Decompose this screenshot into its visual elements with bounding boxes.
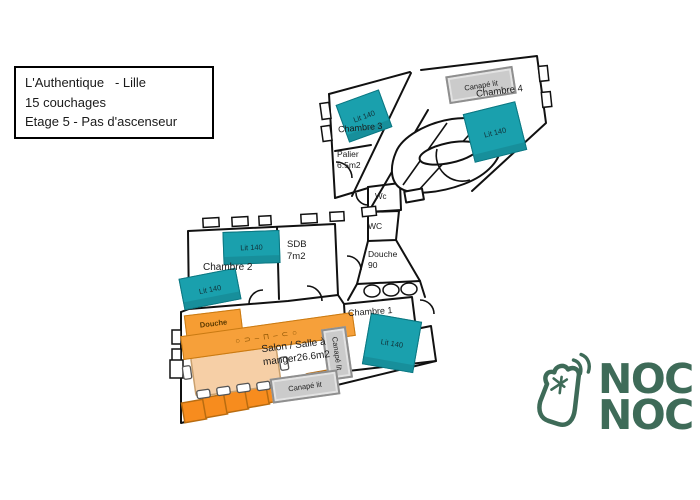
bed-label: Lit 140 [198, 282, 222, 295]
listing-info-box: L'Authentique - Lille 15 couchages Etage… [14, 66, 214, 139]
sofa-label: Canapé lit [288, 380, 323, 394]
shower-label: Douche [199, 317, 227, 329]
listing-title: L'Authentique - Lille [25, 73, 203, 93]
listing-floor: Etage 5 - Pas d'ascenseur [25, 112, 203, 132]
bathroom-basins [364, 283, 417, 297]
room-label-wc: WC [368, 221, 382, 232]
logo-line2: NOC [598, 397, 693, 433]
room-label-wc-small: Wc [375, 192, 387, 202]
room-label-douche: Douche 90 [368, 249, 397, 270]
palier-area: 6.5m2 [337, 160, 361, 171]
bed-chambre1: Lit 140 [362, 313, 422, 373]
douche-size: 90 [368, 260, 397, 271]
sdb-name: SDB [287, 239, 307, 251]
floorplan-page: L'Authentique - Lille 15 couchages Etage… [0, 0, 700, 500]
bed-label: Lit 140 [380, 337, 404, 350]
room-label-sdb: SDB 7m2 [287, 239, 307, 263]
knocking-fist-icon [525, 351, 597, 443]
bed-label: Lit 140 [240, 243, 263, 253]
room-label-chambre2: Chambre 2 [203, 262, 267, 275]
nocnoc-logo: NOC NOC [528, 350, 696, 444]
room-label-palier: Palier 6.5m2 [337, 149, 361, 170]
bed-label: Lit 140 [483, 125, 507, 139]
listing-capacity: 15 couchages [25, 93, 203, 113]
palier-name: Palier [337, 149, 361, 160]
sdb-area: 7m2 [287, 251, 307, 263]
logo-wordmark: NOC NOC [598, 361, 693, 433]
bed-chambre2-a: Lit 140 [222, 230, 280, 265]
douche-name: Douche [368, 249, 397, 260]
